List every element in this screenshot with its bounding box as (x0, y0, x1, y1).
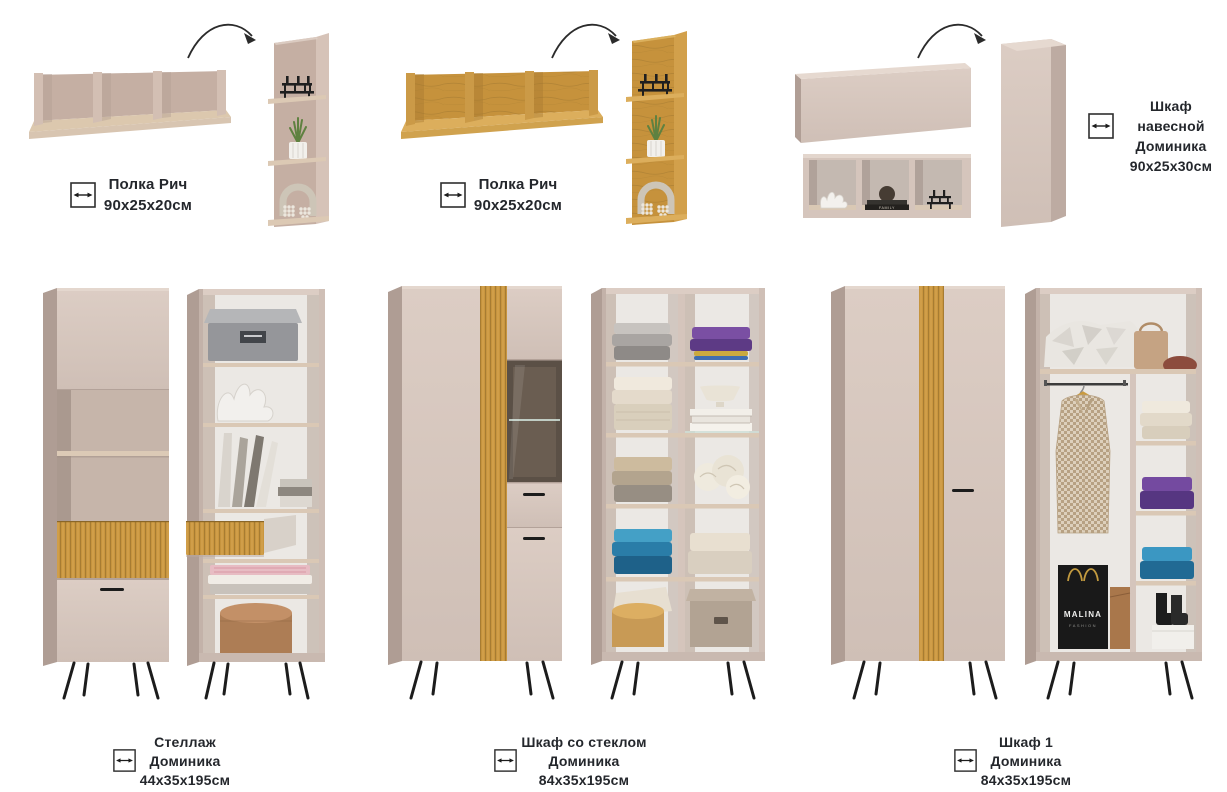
product-series: Доминика (969, 752, 1083, 771)
product-dimensions: 90х25х20см (98, 195, 198, 216)
wall-cabinet-open-image: FAMILY (797, 148, 977, 224)
product-name: Шкаф 1 (969, 733, 1083, 752)
dimensions-icon (1088, 113, 1114, 139)
product-dimensions: 44х35х195см (128, 771, 242, 790)
stellazh-closed-image (40, 283, 175, 703)
product-name: Стеллаж (128, 733, 242, 752)
wall-shelf-horizontal-beige-image (26, 66, 234, 144)
rotate-arrow-icon (912, 12, 988, 64)
wall-cabinet-vertical-closed-image (993, 32, 1073, 230)
wall-cabinet-closed-image (793, 58, 978, 146)
glass-cabinet-closed-image (385, 281, 570, 704)
stellazh-open-image (184, 283, 332, 703)
product-series: Доминика (517, 752, 651, 771)
product-label: Шкаф навесной Доминика 90х25х30см (1116, 96, 1226, 176)
wall-shelf-horizontal-oak-image (398, 66, 606, 144)
rotate-arrow-icon (182, 12, 258, 64)
rotate-arrow-icon (546, 12, 622, 64)
product-name: Полка Рич (468, 174, 568, 195)
product-dimensions: 84х35х195см (517, 771, 651, 790)
product-series: Доминика (128, 752, 242, 771)
wall-shelf-vertical-oak-image (622, 28, 692, 228)
wardrobe-closed-image (828, 281, 1013, 704)
product-series: Доминика (1116, 136, 1226, 156)
product-label: Стеллаж Доминика 44х35х195см (128, 733, 242, 790)
bag-brand-text: MALINA (1064, 610, 1102, 619)
product-label: Полка Рич 90х25х20см (98, 174, 198, 216)
book-spine-text: FAMILY (879, 206, 895, 210)
product-label: Шкаф со стеклом Доминика 84х35х195см (517, 733, 651, 790)
glass-cabinet-open-image (588, 281, 773, 704)
dimensions-icon (440, 182, 466, 208)
product-dimensions: 90х25х20см (468, 195, 568, 216)
product-dimensions: 90х25х30см (1116, 156, 1226, 176)
dimensions-icon (494, 749, 517, 772)
wall-shelf-vertical-beige-image (264, 30, 334, 230)
product-name: Полка Рич (98, 174, 198, 195)
product-name: Шкаф навесной (1116, 96, 1226, 136)
bag-brand-subtext: FASHION (1069, 623, 1097, 628)
product-label: Полка Рич 90х25х20см (468, 174, 568, 216)
wardrobe-open-image: MALINA FASHION (1022, 281, 1210, 704)
product-dimensions: 84х35х195см (969, 771, 1083, 790)
catalog-page: Полка Рич 90х25х20см (0, 0, 1227, 792)
product-label: Шкаф 1 Доминика 84х35х195см (969, 733, 1083, 790)
dimensions-icon (70, 182, 96, 208)
product-name: Шкаф со стеклом (517, 733, 651, 752)
